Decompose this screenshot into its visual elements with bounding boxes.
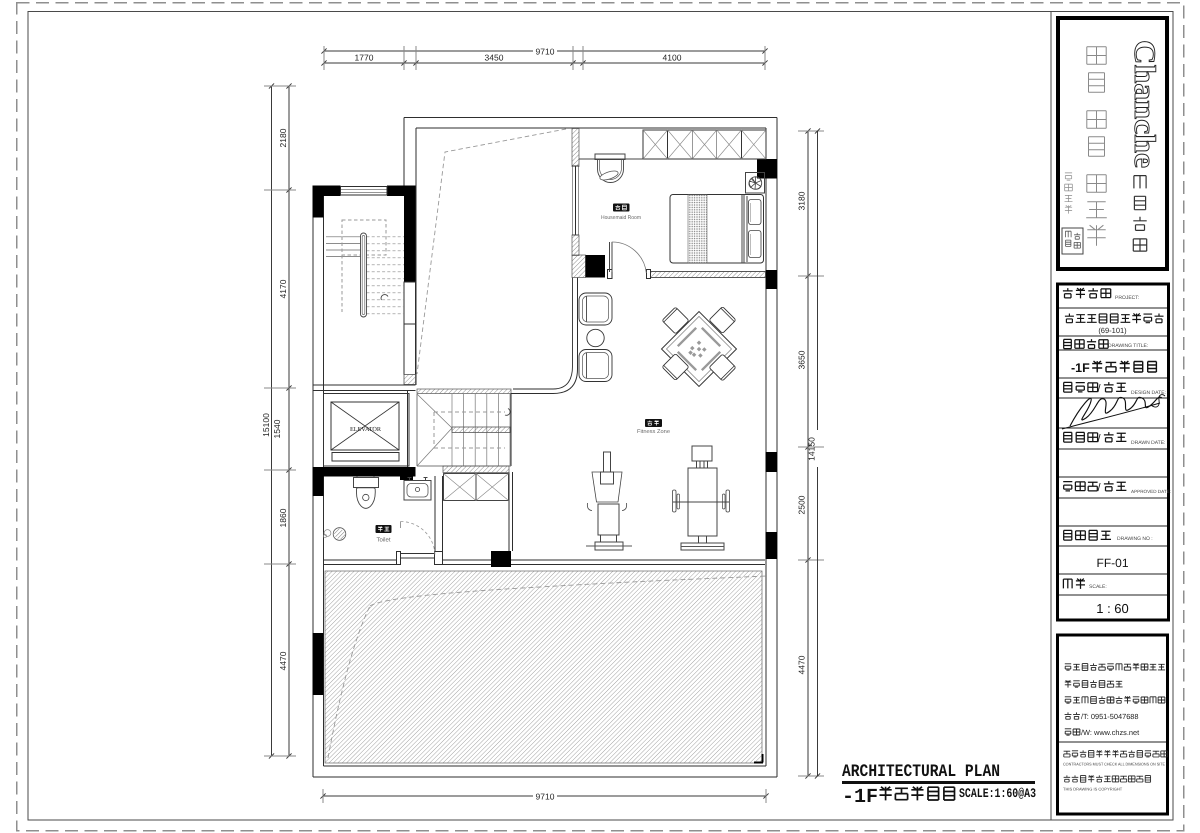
svg-text:1860: 1860 <box>278 508 288 527</box>
svg-text:3650: 3650 <box>797 350 807 369</box>
svg-text:PROJECT:: PROJECT: <box>1115 295 1139 301</box>
svg-text:2180: 2180 <box>278 128 288 147</box>
svg-text:3450: 3450 <box>485 53 504 63</box>
svg-text:14150: 14150 <box>807 437 817 461</box>
svg-text:DRAWING TITLE:: DRAWING TITLE: <box>1108 343 1148 349</box>
svg-text:2500: 2500 <box>797 495 807 514</box>
svg-text:ELEVATOR: ELEVATOR <box>350 426 382 433</box>
svg-text:1770: 1770 <box>355 53 374 63</box>
svg-text:9710: 9710 <box>536 792 555 802</box>
svg-text:-1F: -1F <box>1071 361 1090 375</box>
svg-text:15100: 15100 <box>261 413 271 437</box>
svg-text:4170: 4170 <box>278 279 288 298</box>
svg-text:(69-101): (69-101) <box>1098 326 1127 335</box>
svg-text:SCALE:1:60@A3: SCALE:1:60@A3 <box>959 786 1036 801</box>
svg-text:ARCHITECTURAL PLAN: ARCHITECTURAL PLAN <box>842 762 1000 782</box>
svg-text:4100: 4100 <box>663 53 682 63</box>
svg-text:FF-01: FF-01 <box>1096 556 1128 570</box>
svg-text:4470: 4470 <box>797 655 807 674</box>
svg-text:9710: 9710 <box>536 47 555 57</box>
svg-text:THIS DRAWING IS COPYRIGHT: THIS DRAWING IS COPYRIGHT <box>1063 787 1123 792</box>
svg-text:DRAWN DATE:: DRAWN DATE: <box>1131 440 1165 446</box>
svg-text:Toilet: Toilet <box>376 537 390 544</box>
svg-text:/T: 0951-5047688: /T: 0951-5047688 <box>1081 712 1139 721</box>
svg-text:APPROVED DATE:: APPROVED DATE: <box>1131 489 1171 494</box>
svg-text:1540: 1540 <box>272 419 282 438</box>
svg-text:DRAWING NO :: DRAWING NO : <box>1117 536 1153 542</box>
svg-text:3180: 3180 <box>797 191 807 210</box>
svg-text:4470: 4470 <box>278 651 288 670</box>
svg-text:SCALE:: SCALE: <box>1089 584 1107 590</box>
svg-text:Chanche: Chanche <box>1128 40 1161 168</box>
svg-text:CONTRACTORS MUST CHECK ALL DIM: CONTRACTORS MUST CHECK ALL DIMENSIONS ON… <box>1063 762 1165 767</box>
svg-text:/W: www.chzs.net: /W: www.chzs.net <box>1081 728 1139 737</box>
svg-text:1 : 60: 1 : 60 <box>1096 601 1129 616</box>
svg-text:Housemaid Room: Housemaid Room <box>601 215 641 221</box>
svg-text:-1F: -1F <box>842 786 878 809</box>
svg-text:Fitness Zone: Fitness Zone <box>637 429 670 435</box>
